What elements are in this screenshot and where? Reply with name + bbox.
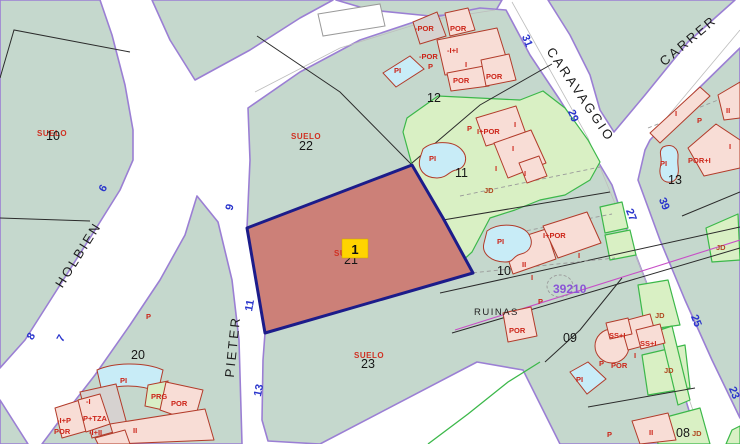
- building-label: I: [514, 120, 516, 129]
- building-label: POR: [54, 427, 71, 436]
- building-label: P: [599, 359, 604, 368]
- building-label: POR: [171, 399, 188, 408]
- building-label: SS+I: [640, 339, 656, 348]
- building-label: I: [634, 351, 636, 360]
- building-label: P: [607, 430, 612, 439]
- building-label: -POR: [419, 52, 438, 61]
- building-label: POR: [486, 72, 503, 81]
- garden-label: JD: [692, 429, 702, 438]
- ruins-label: RUINAS: [474, 307, 519, 318]
- building-label: POR: [509, 326, 526, 335]
- pool-label: PI: [576, 375, 583, 384]
- building-label: II: [726, 106, 730, 115]
- parcel-number: 10: [497, 264, 511, 278]
- zone-number: 39210: [553, 282, 587, 296]
- cadastral-map-viewport[interactable]: HOLBIEN PIETER CARAVAGGIO CARRER 6 9 8 7…: [0, 0, 740, 444]
- parcel-number: 23: [361, 357, 375, 371]
- pool-label: PI: [429, 154, 436, 163]
- building-label: P: [146, 312, 151, 321]
- building-label: I: [495, 164, 497, 173]
- building-label: -I+I: [447, 46, 458, 55]
- building-label: P: [538, 297, 543, 306]
- building-label: POR: [450, 24, 467, 33]
- building-label: I: [465, 60, 467, 69]
- parcel-number: 09: [563, 331, 577, 345]
- pool-label: PI: [660, 159, 667, 168]
- building-label: PRG: [151, 392, 167, 401]
- parcel-number: 08: [676, 426, 690, 440]
- building-label: POR: [611, 361, 628, 370]
- building-label: P: [428, 62, 433, 71]
- building-label: POR+I: [688, 156, 711, 165]
- building-label: II: [649, 428, 653, 437]
- building-label: I+POR: [543, 231, 566, 240]
- parcel-number: 22: [299, 139, 313, 153]
- pool-label: PI: [120, 376, 127, 385]
- parcel-number: 11: [455, 166, 468, 180]
- building-label: P+TZA: [83, 414, 108, 423]
- building-label: -I+II: [89, 428, 102, 437]
- building-label: P: [697, 116, 702, 125]
- building-label: I: [578, 251, 580, 260]
- building-label: POR: [453, 76, 470, 85]
- parcel-number: 13: [668, 173, 682, 187]
- building-label: -I+P: [57, 416, 71, 425]
- parcel-number: 20: [131, 348, 145, 362]
- building-label: -I: [86, 397, 91, 406]
- garden-label: JD: [716, 243, 726, 252]
- building-label: II: [522, 260, 526, 269]
- parcel-number: 10: [46, 129, 60, 143]
- selection-badge-number: 1: [351, 242, 358, 257]
- street-number: 11: [243, 299, 257, 313]
- building-label: I: [675, 109, 677, 118]
- building: [481, 54, 516, 86]
- garden-label: JD: [664, 366, 674, 375]
- parcel-number: 12: [427, 91, 441, 105]
- pool-label: PI: [394, 66, 401, 75]
- building-label: SS+I: [609, 331, 625, 340]
- garden-label: JD: [655, 311, 665, 320]
- building-label: I: [512, 144, 514, 153]
- building-label: I: [729, 142, 731, 151]
- pool-label: PI: [497, 237, 504, 246]
- building-label: P: [467, 124, 472, 133]
- cadastral-map[interactable]: HOLBIEN PIETER CARAVAGGIO CARRER 6 9 8 7…: [0, 0, 740, 444]
- building-label: I+POR: [477, 127, 500, 136]
- building-label: I: [524, 169, 526, 178]
- garden-label: JD: [484, 186, 494, 195]
- building-label: -POR: [415, 24, 434, 33]
- building-label: II: [133, 426, 137, 435]
- building-label: I: [531, 273, 533, 282]
- street-number: 13: [252, 383, 266, 397]
